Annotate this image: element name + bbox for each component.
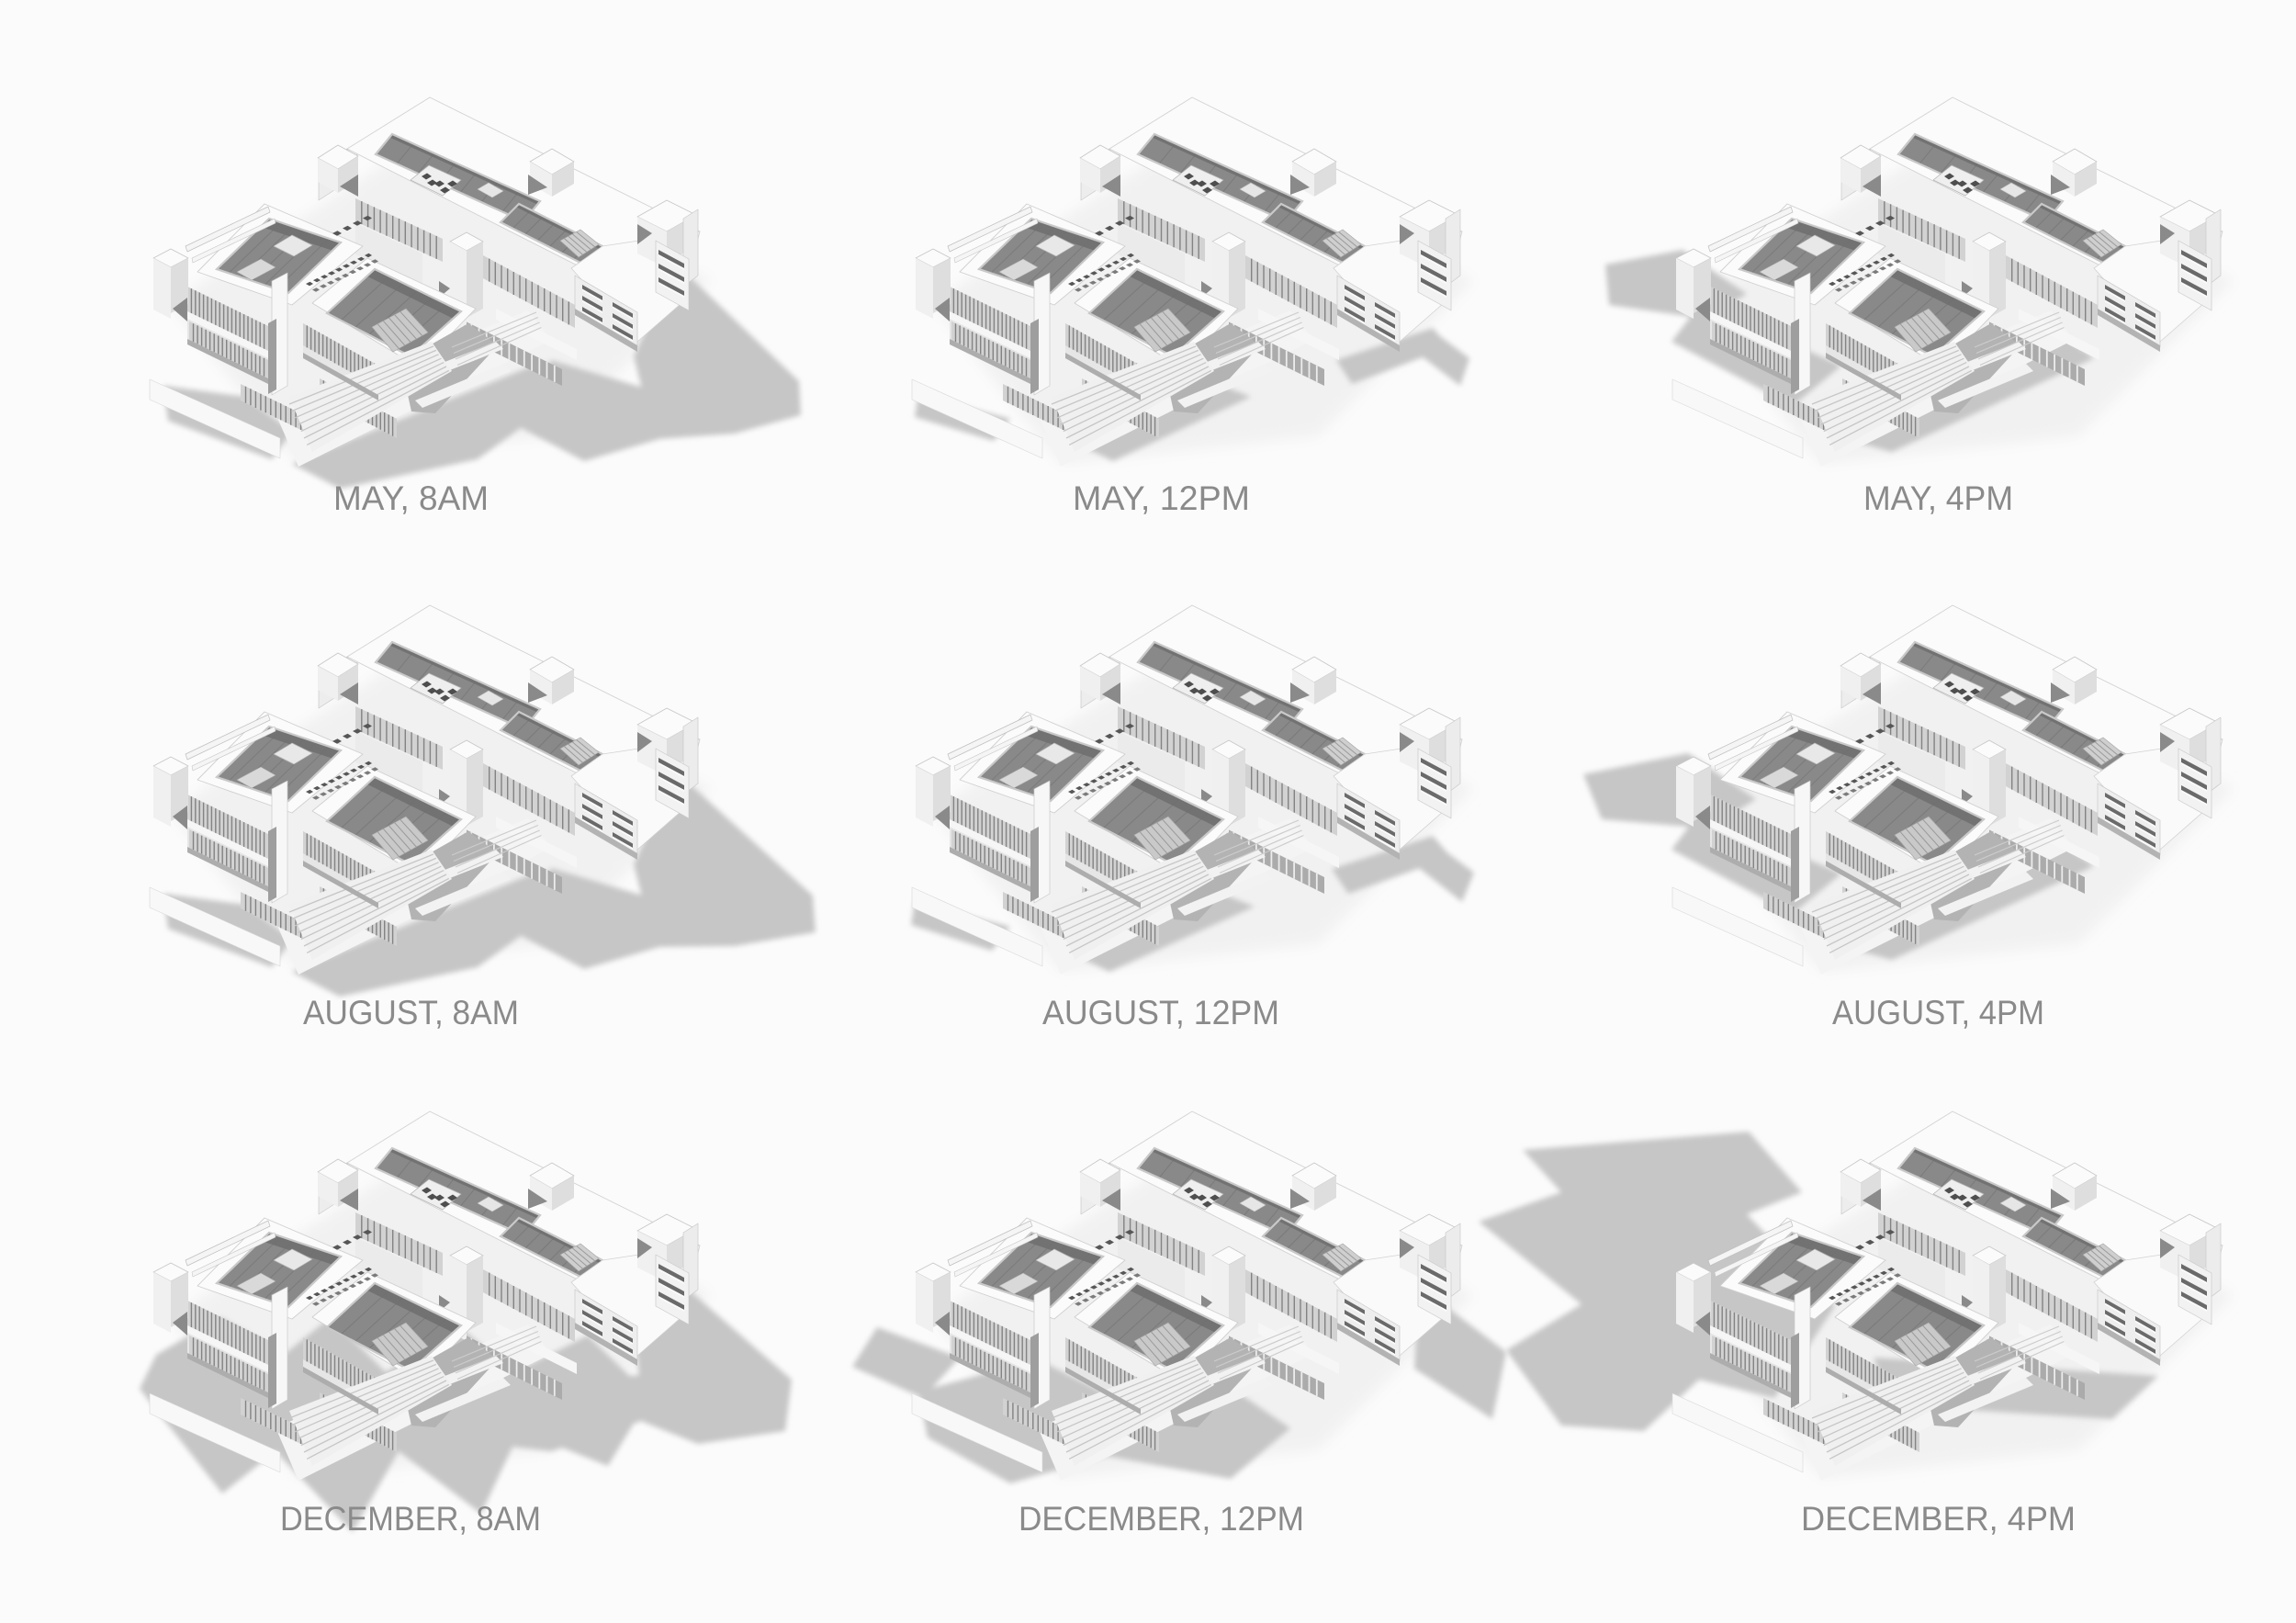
svg-text:AUGUST, 4PM: AUGUST, 4PM <box>1832 994 2044 1031</box>
svg-text:DECEMBER, 12PM: DECEMBER, 12PM <box>1019 1500 1304 1538</box>
svg-text:AUGUST, 12PM: AUGUST, 12PM <box>1042 994 1279 1031</box>
svg-text:AUGUST, 8AM: AUGUST, 8AM <box>303 994 519 1031</box>
svg-text:DECEMBER, 8AM: DECEMBER, 8AM <box>280 1500 541 1538</box>
svg-text:MAY, 8AM: MAY, 8AM <box>333 479 489 517</box>
svg-text:MAY, 4PM: MAY, 4PM <box>1863 479 2013 517</box>
svg-text:MAY, 12PM: MAY, 12PM <box>1073 479 1250 517</box>
svg-text:DECEMBER, 4PM: DECEMBER, 4PM <box>1801 1500 2076 1538</box>
